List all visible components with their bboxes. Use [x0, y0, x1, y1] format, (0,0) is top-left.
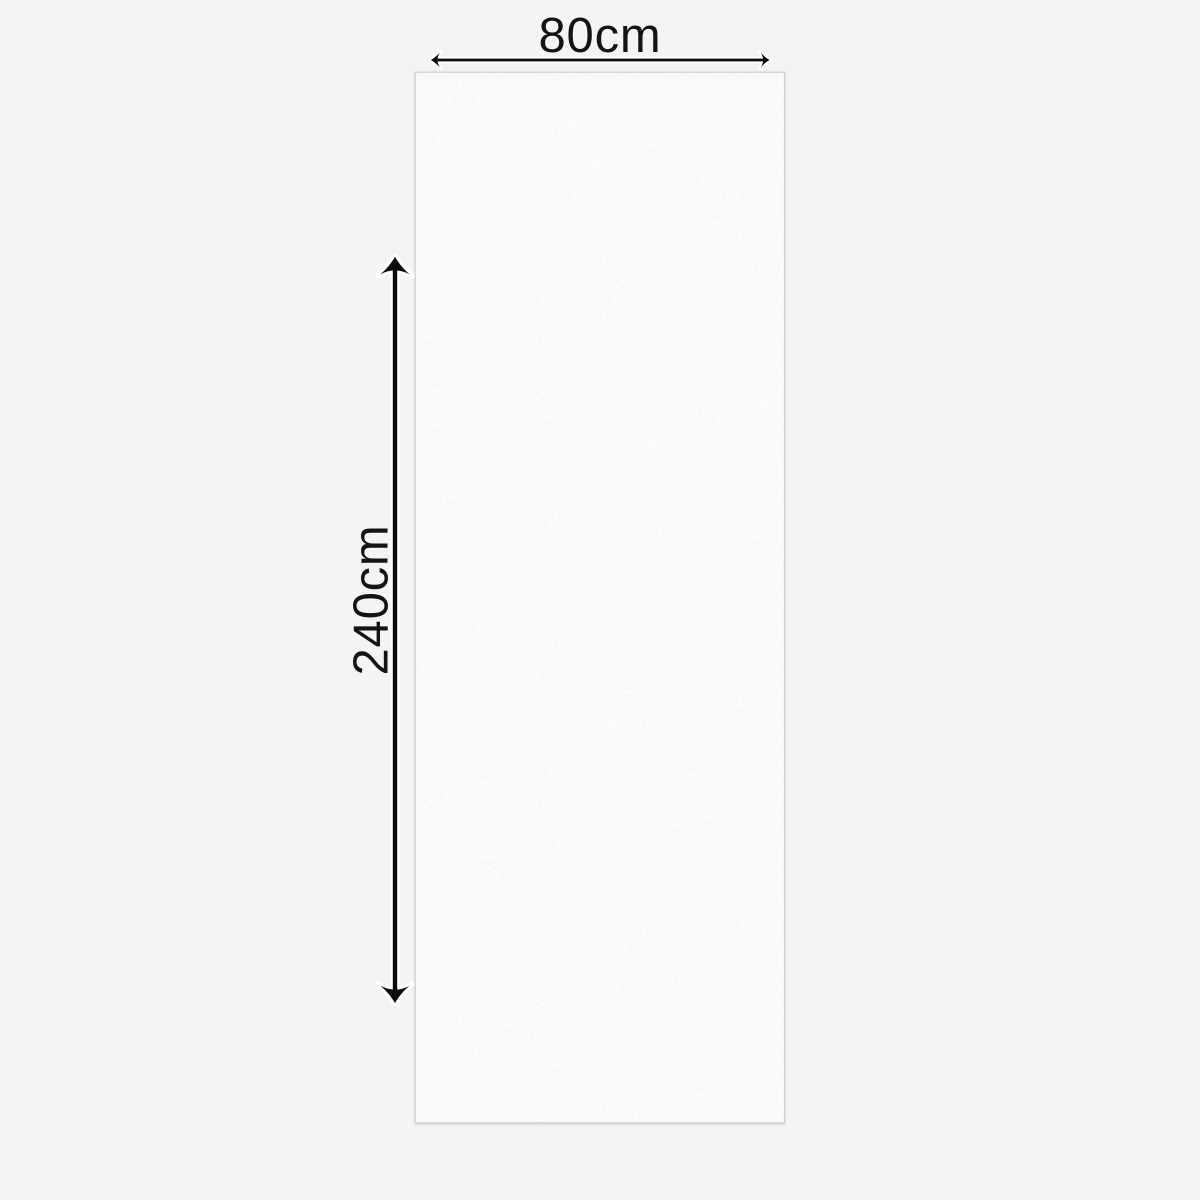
svg-text:240cm: 240cm	[345, 524, 399, 675]
svg-text:80cm: 80cm	[538, 9, 661, 63]
